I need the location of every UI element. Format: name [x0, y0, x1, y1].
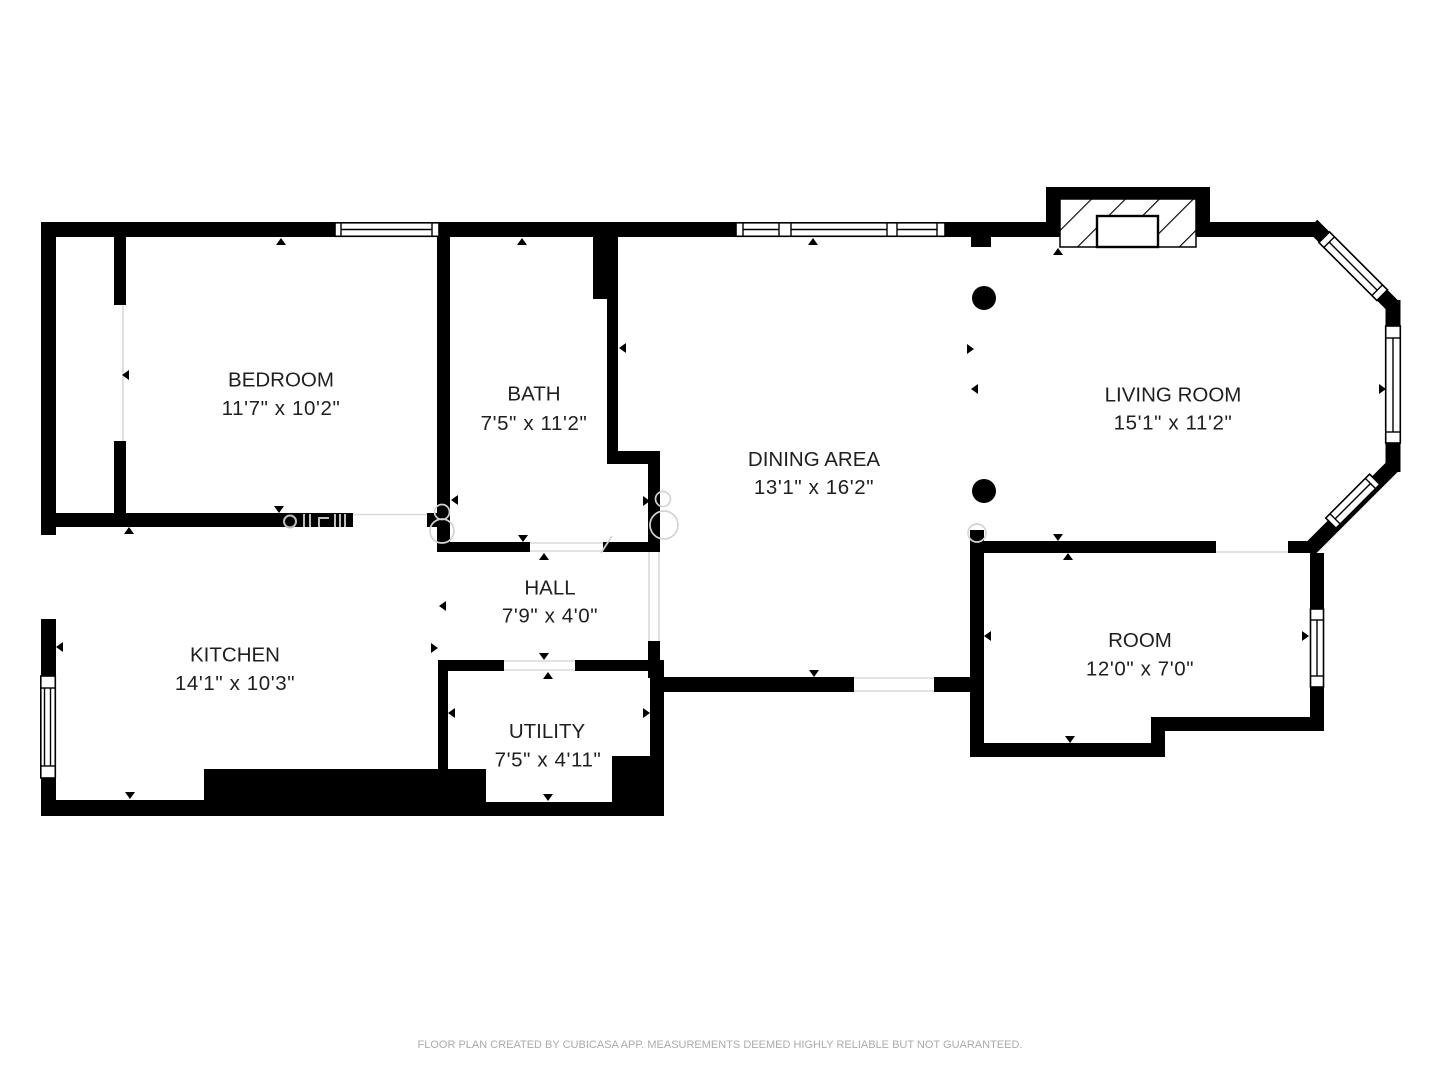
svg-text:7'5" x 4'11": 7'5" x 4'11": [495, 749, 602, 772]
svg-text:KITCHEN: KITCHEN: [190, 644, 280, 667]
svg-text:LIVING ROOM: LIVING ROOM: [1105, 384, 1242, 407]
svg-text:7'9" x 4'0": 7'9" x 4'0": [502, 605, 598, 628]
svg-text:15'1" x 11'2": 15'1" x 11'2": [1114, 412, 1233, 435]
svg-text:11'7" x 10'2": 11'7" x 10'2": [222, 397, 341, 420]
svg-text:UTILITY: UTILITY: [509, 720, 586, 743]
svg-text:BEDROOM: BEDROOM: [228, 369, 334, 392]
svg-text:12'0" x 7'0": 12'0" x 7'0": [1086, 658, 1194, 681]
svg-text:7'5" x 11'2": 7'5" x 11'2": [481, 412, 588, 435]
svg-text:14'1" x 10'3": 14'1" x 10'3": [175, 672, 295, 695]
svg-text:DINING AREA: DINING AREA: [748, 448, 880, 471]
svg-text:ROOM: ROOM: [1108, 629, 1172, 652]
svg-text:HALL: HALL: [524, 577, 575, 600]
svg-text:13'1" x 16'2": 13'1" x 16'2": [754, 476, 874, 499]
svg-text:BATH: BATH: [507, 383, 560, 406]
svg-text:FLOOR PLAN CREATED BY CUBICASA: FLOOR PLAN CREATED BY CUBICASA APP. MEAS…: [418, 1039, 1023, 1051]
